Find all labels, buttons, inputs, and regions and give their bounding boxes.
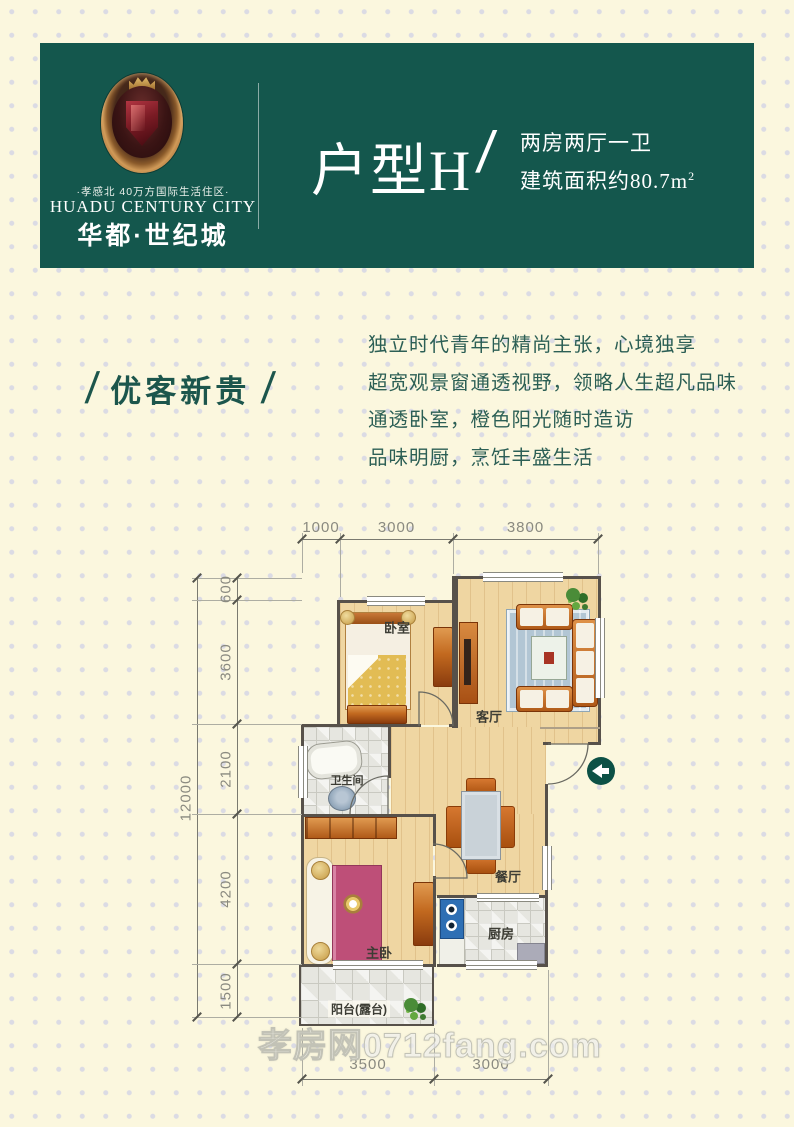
dim-label-total: 12000 (178, 775, 195, 822)
dim-extension (192, 724, 302, 725)
watermark: 孝房网0712fang.com (258, 1018, 602, 1067)
dim-label: 1000 (302, 519, 340, 536)
dim-extension (192, 964, 302, 965)
room-label-master: 主卧 (366, 943, 392, 962)
room-label-dining: 餐厅 (495, 867, 521, 886)
room-label-bedroom: 卧室 (384, 618, 410, 637)
dim-extension (340, 533, 341, 597)
room-label-balcony: 阳台(露台) (328, 1001, 390, 1018)
dim-label: 3800 (453, 519, 598, 536)
dim-label: 1500 (218, 972, 235, 1009)
dim-line (302, 1079, 549, 1080)
flyer-page: ·孝感北 40万方国际生活住区· HUADU CENTURY CITY 华都·世… (0, 0, 794, 1127)
dim-extension (192, 600, 302, 601)
dim-line (237, 578, 238, 1018)
entrance-arrow-icon (587, 757, 615, 785)
room-label-kitchen: 厨房 (488, 924, 514, 943)
dim-label: 4200 (218, 870, 235, 907)
dim-label: 600 (218, 575, 235, 603)
dim-label: 3600 (218, 643, 235, 680)
dim-line (197, 578, 198, 1018)
dim-extension (192, 578, 302, 579)
door-arcs (0, 0, 794, 1127)
dim-extension (192, 814, 302, 815)
dim-label: 2100 (218, 750, 235, 787)
dim-label: 3000 (340, 519, 453, 536)
room-label-bathroom: 卫生间 (331, 772, 364, 788)
room-label-living: 客厅 (476, 707, 502, 726)
